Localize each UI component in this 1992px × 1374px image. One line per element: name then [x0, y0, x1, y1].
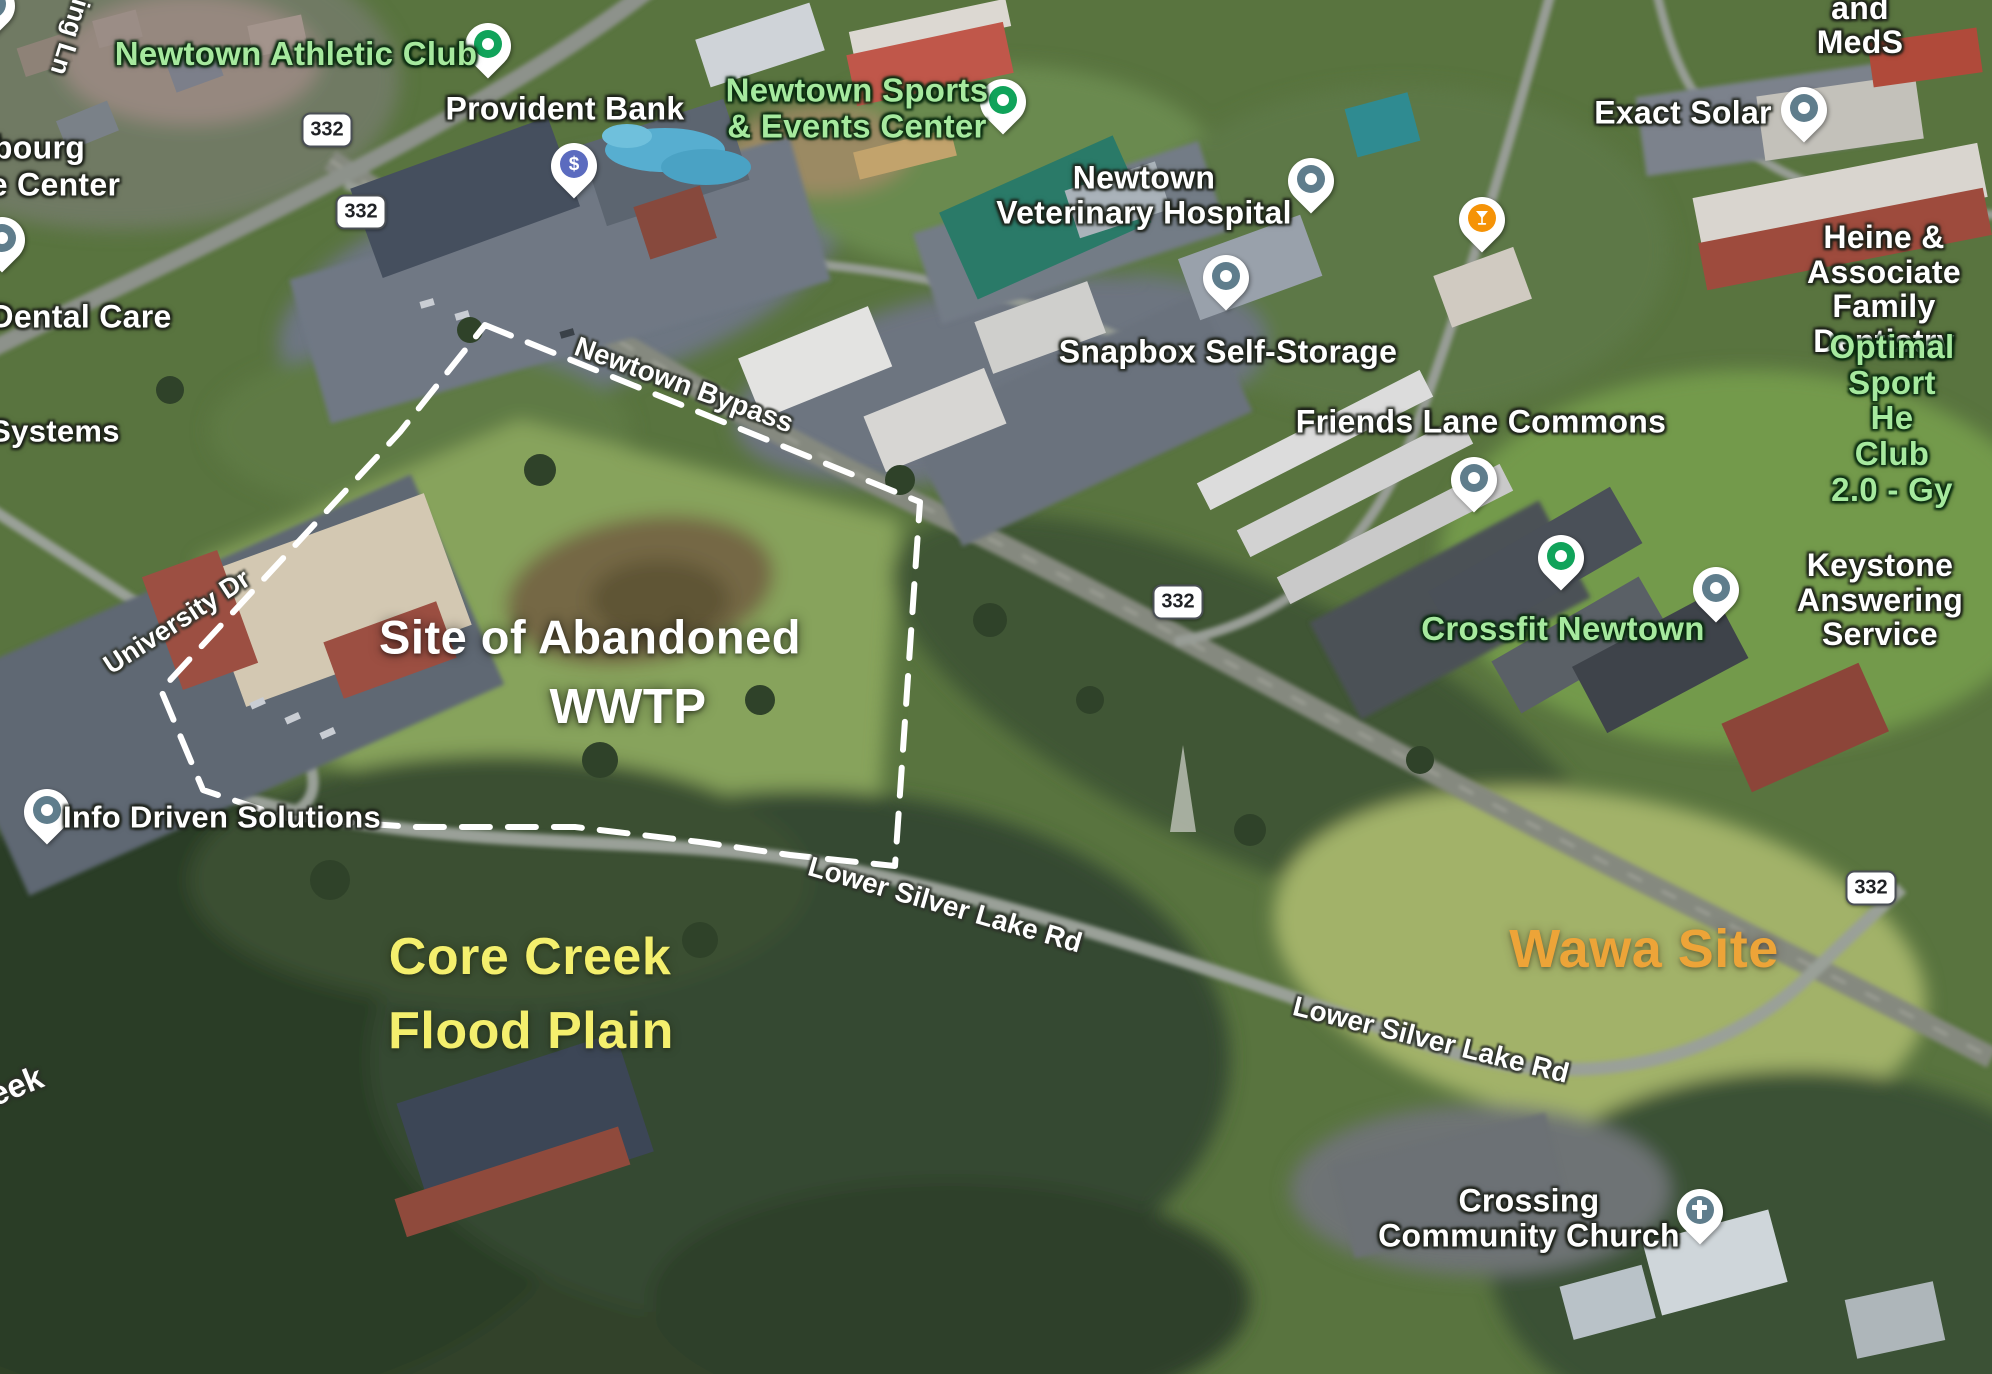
- road-newtown-bypass: Newtown Bypass: [570, 331, 797, 440]
- poi-exact-solar[interactable]: Exact Solar: [1594, 96, 1772, 131]
- poi-optimal-sport-club[interactable]: Optimal Sport He Club 2.0 - Gy: [1830, 329, 1955, 507]
- road-lower-silver-lake-rd-west: Lower Silver Lake Rd: [804, 851, 1085, 960]
- flood-plain-annotation-line2: Flood Plain: [388, 1001, 674, 1061]
- road-university-dr: University Dr: [98, 563, 256, 681]
- poi-crossing-community-church[interactable]: Crossing Community Church: [1378, 1183, 1680, 1252]
- poi-e-center[interactable]: e Center: [0, 168, 120, 203]
- poi-center-and-meds[interactable]: Center and MedS: [1794, 0, 1926, 60]
- road-creek-fragment: eek: [0, 1058, 49, 1114]
- poi-newtown-veterinary-hospital[interactable]: Newtown Veterinary Hospital: [996, 160, 1292, 229]
- poi-keystone-answering[interactable]: Keystone Answering Service: [1797, 548, 1963, 652]
- flood-plain-annotation-line1: Core Creek: [389, 927, 671, 987]
- route-shield-332-b: 332: [336, 195, 387, 230]
- route-shield-332-a: 332: [302, 113, 353, 148]
- poi-systems[interactable]: Systems: [0, 414, 120, 447]
- poi-friends-lane-commons[interactable]: Friends Lane Commons: [1296, 405, 1667, 440]
- poi-info-driven-solutions[interactable]: Info Driven Solutions: [63, 800, 381, 833]
- poi-bourg[interactable]: bourg: [0, 131, 85, 166]
- poi-crossfit-newtown[interactable]: Crossfit Newtown: [1421, 611, 1704, 647]
- poi-newtown-sports-events-center[interactable]: Newtown Sports & Events Center: [726, 72, 989, 143]
- site-annotation-line1: Site of Abandoned: [379, 610, 801, 665]
- site-annotation-line2: WWTP: [549, 679, 706, 735]
- route-shield-332-c: 332: [1153, 585, 1204, 620]
- poi-dental-care[interactable]: Dental Care: [0, 300, 172, 335]
- map-canvas[interactable]: $ Newtown Athletic ClubProvident BankNew…: [0, 0, 1992, 1374]
- wawa-site-annotation: Wawa Site: [1509, 918, 1779, 980]
- route-shield-332-d: 332: [1846, 871, 1897, 906]
- label-layer: Newtown Athletic ClubProvident BankNewto…: [0, 0, 1992, 1374]
- poi-snapbox-self-storage[interactable]: Snapbox Self-Storage: [1059, 335, 1398, 370]
- road-ing-ln: ing Ln: [44, 0, 96, 79]
- road-lower-silver-lake-rd-east: Lower Silver Lake Rd: [1290, 990, 1573, 1090]
- poi-provident-bank[interactable]: Provident Bank: [446, 92, 685, 127]
- poi-newtown-athletic-club[interactable]: Newtown Athletic Club: [115, 36, 478, 72]
